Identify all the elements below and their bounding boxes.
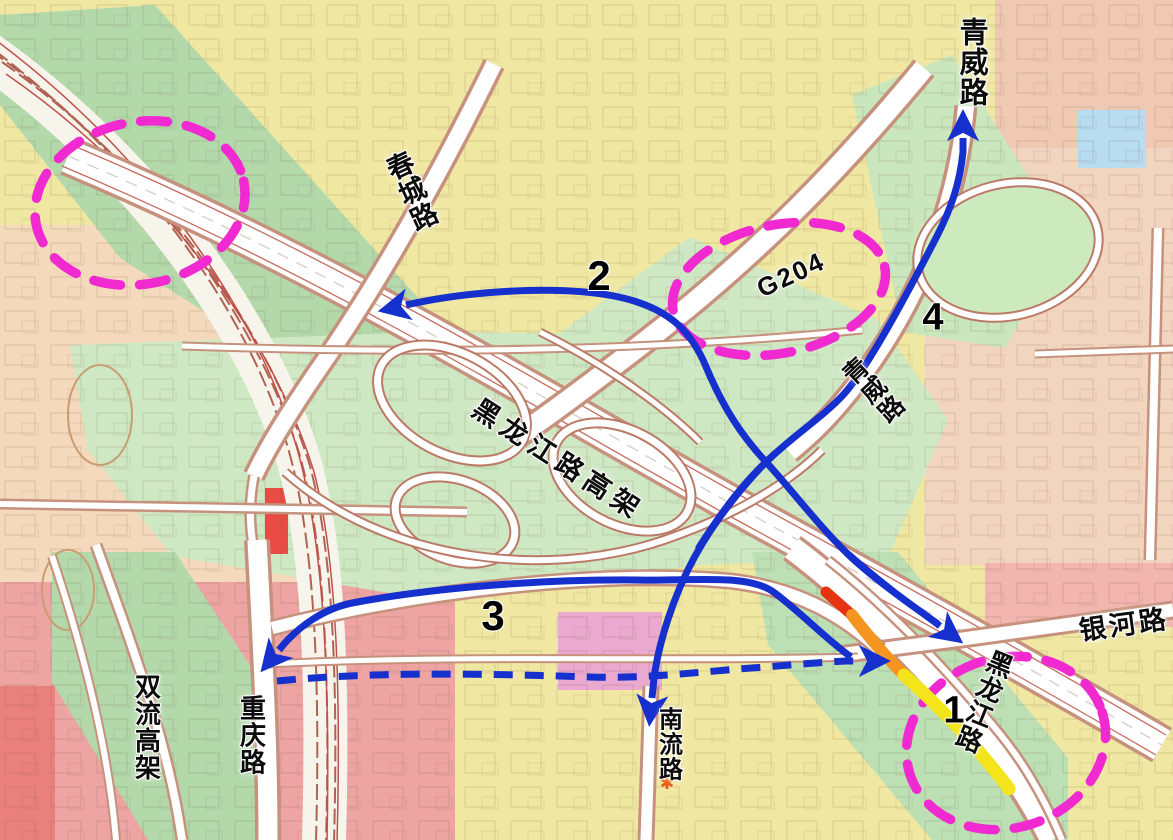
route-arrow-3-to-chongqing — [279, 579, 851, 657]
route-arrow-1-to-heilongjiang — [848, 554, 940, 626]
traffic-detour-map: ✱ 青威路春城路G204黑龙江路高架青威路银河路黑龙江路双流高架重庆路南流路12… — [0, 0, 1173, 840]
route-arrow-2-to-chuncheng — [406, 290, 938, 624]
annotation-overlay: ✱ — [0, 0, 1173, 840]
congestion-segment-moderate — [852, 615, 904, 675]
congestion-segments — [826, 592, 1009, 789]
highlight-ellipse-area-heilongjiang-south — [884, 631, 1129, 840]
route-arrows — [277, 138, 963, 698]
highlight-ellipse-area-northwest — [19, 102, 260, 305]
route-arrow-dashed-east — [277, 661, 862, 681]
poi-markers: ✱ — [660, 774, 674, 793]
destination-star-icon: ✱ — [660, 774, 674, 793]
congestion-segment-light — [904, 675, 1009, 789]
